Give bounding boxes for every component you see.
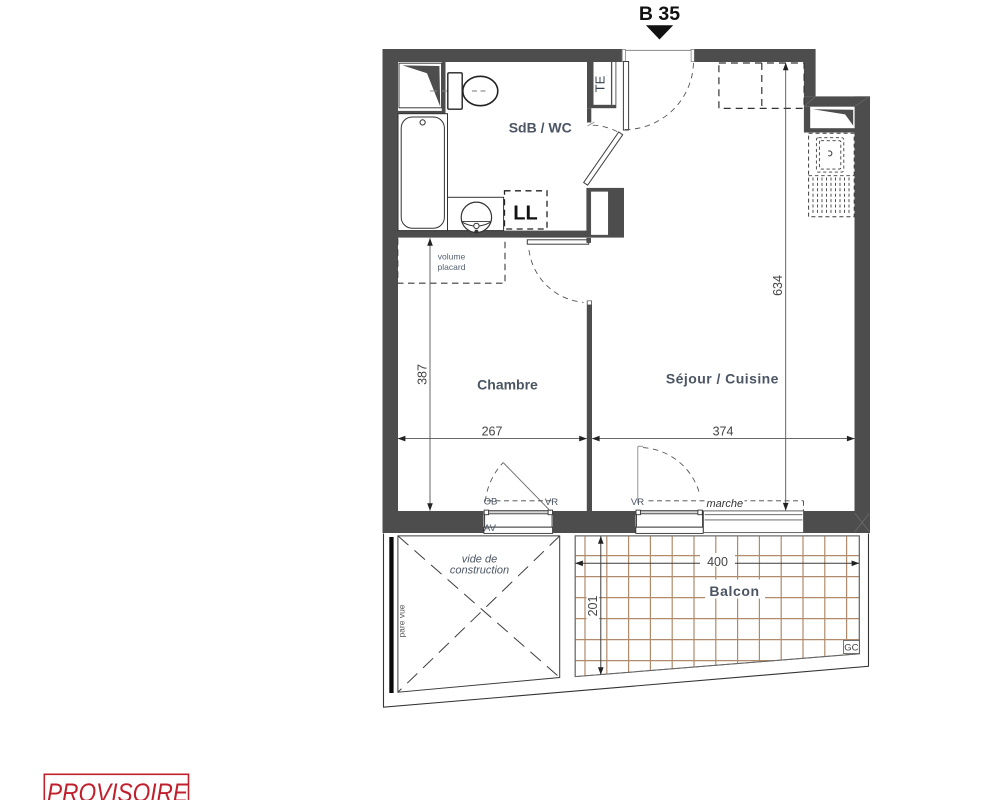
svg-text:634: 634 — [771, 275, 785, 296]
svg-text:TE: TE — [593, 75, 608, 92]
svg-text:pare vue: pare vue — [397, 604, 407, 637]
svg-text:construction: construction — [450, 565, 509, 577]
svg-text:387: 387 — [416, 364, 430, 385]
svg-text:OB: OB — [484, 497, 498, 508]
svg-text:AV: AV — [484, 523, 497, 534]
svg-text:Séjour / Cuisine: Séjour / Cuisine — [666, 371, 779, 387]
svg-text:374: 374 — [713, 424, 734, 438]
svg-text:PROVISOIRE: PROVISOIRE — [47, 778, 189, 800]
svg-text:Balcon: Balcon — [709, 583, 759, 599]
svg-text:267: 267 — [482, 424, 503, 438]
svg-text:LL: LL — [513, 203, 537, 225]
svg-text:400: 400 — [707, 555, 728, 569]
svg-text:marche: marche — [706, 498, 743, 510]
svg-text:Chambre: Chambre — [477, 377, 538, 393]
svg-text:GC: GC — [844, 643, 858, 654]
svg-text:vide de: vide de — [462, 553, 497, 565]
svg-text:201: 201 — [586, 596, 600, 617]
svg-text:placard: placard — [438, 262, 466, 272]
svg-text:SdB / WC: SdB / WC — [509, 120, 572, 136]
svg-text:VR: VR — [631, 497, 644, 508]
svg-text:VR: VR — [545, 497, 558, 508]
svg-text:B 35: B 35 — [639, 3, 680, 25]
svg-text:volume: volume — [438, 252, 466, 262]
